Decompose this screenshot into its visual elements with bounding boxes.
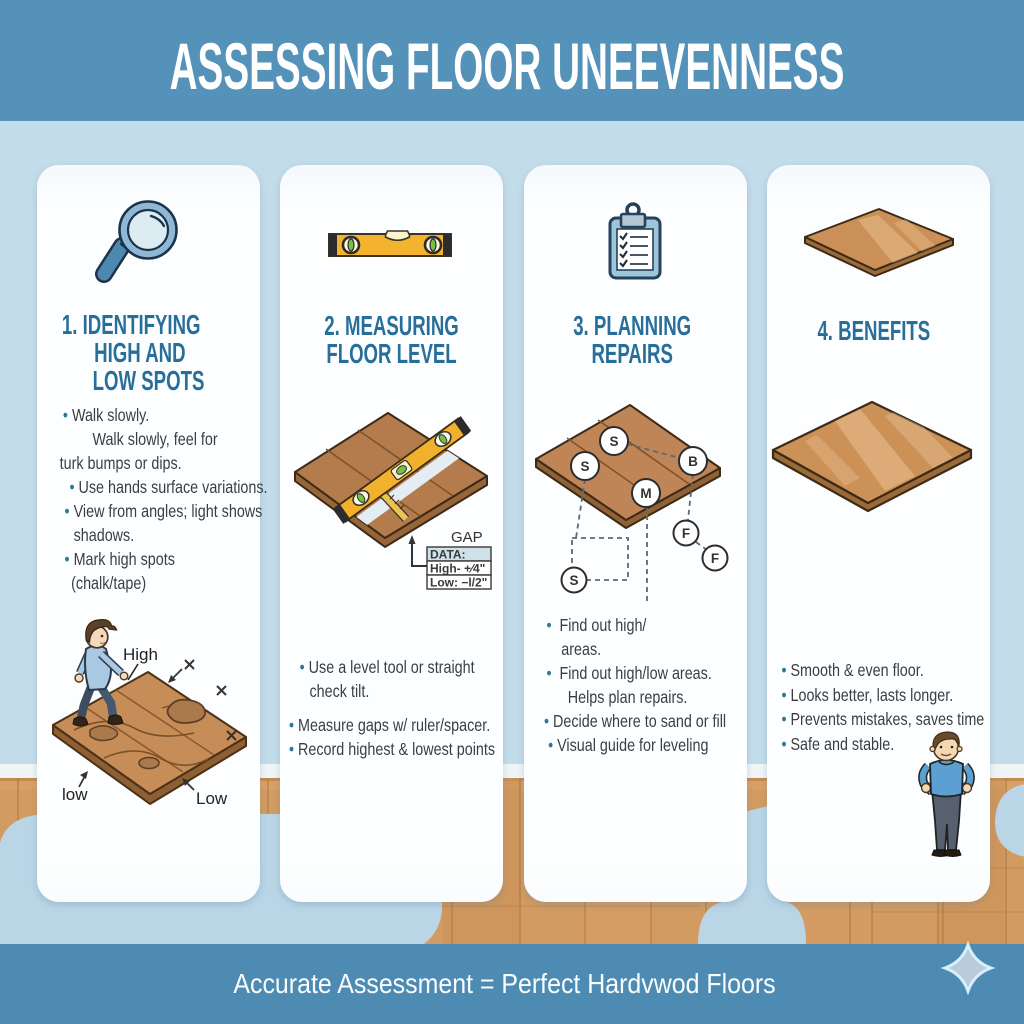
svg-text:S: S	[569, 573, 578, 588]
svg-text:S: S	[609, 434, 618, 449]
svg-text:GAP: GAP	[451, 529, 483, 546]
svg-text:F: F	[711, 551, 719, 566]
svg-text:High: High	[123, 645, 158, 664]
svg-text:F: F	[682, 526, 690, 541]
svg-text:DATA:: DATA:	[430, 548, 466, 562]
svg-text:High- +⁄4": High- +⁄4"	[430, 562, 485, 576]
svg-text:low: low	[62, 785, 88, 804]
svg-text:M: M	[640, 486, 651, 501]
svg-text:Low: −l/2": Low: −l/2"	[430, 576, 487, 590]
svg-text:Low: Low	[196, 789, 228, 808]
svg-text:B: B	[688, 454, 698, 469]
svg-text:S: S	[580, 459, 589, 474]
